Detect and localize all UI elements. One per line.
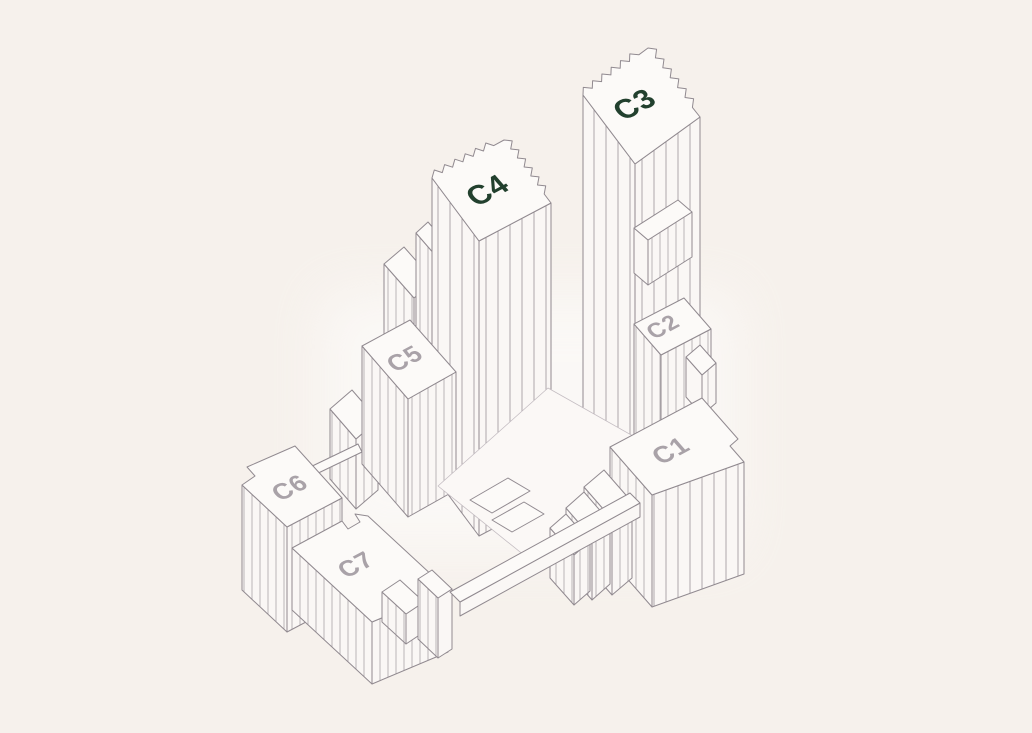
site-map-canvas: C3 C4 C2 [0,0,1032,733]
isometric-site-map: C3 C4 C2 [0,0,1032,733]
c7-sidebox-right [438,589,452,658]
